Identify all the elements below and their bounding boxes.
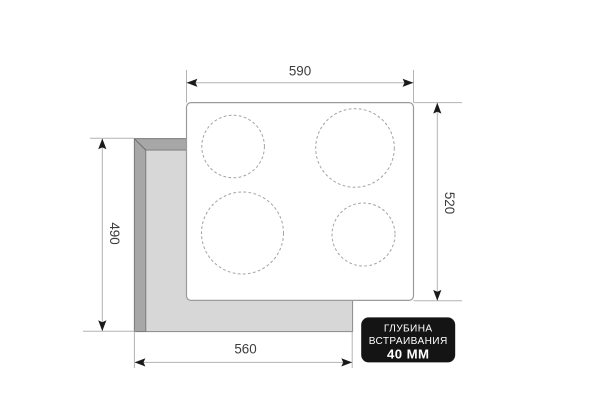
svg-text:490: 490 — [107, 222, 122, 244]
svg-text:ГЛУБИНА: ГЛУБИНА — [384, 323, 433, 334]
svg-text:520: 520 — [442, 192, 457, 214]
svg-text:40 ММ: 40 ММ — [387, 347, 429, 362]
svg-text:590: 590 — [289, 63, 311, 78]
svg-text:560: 560 — [234, 341, 256, 356]
